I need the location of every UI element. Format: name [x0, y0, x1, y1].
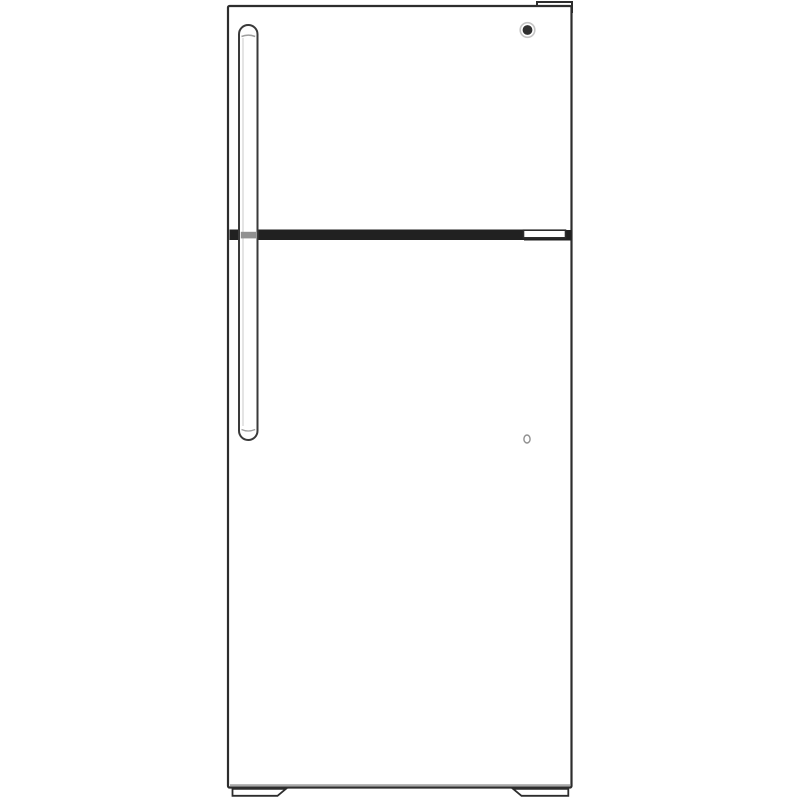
- door-lock: [524, 435, 530, 443]
- refrigerator-line-drawing: [0, 0, 800, 800]
- cabinet-outline: [228, 6, 572, 788]
- divider-end-cap: [524, 230, 566, 238]
- brand-logo-badge: [520, 23, 535, 38]
- product-image-canvas: [0, 0, 800, 800]
- handle-band-stripe: [241, 232, 256, 239]
- door-handle: [239, 25, 258, 440]
- brand-badge-core: [523, 25, 533, 35]
- right-foot: [513, 789, 568, 796]
- door-divider-band: [230, 230, 526, 241]
- left-foot: [233, 789, 287, 796]
- bottom-edge-shadow: [230, 784, 570, 786]
